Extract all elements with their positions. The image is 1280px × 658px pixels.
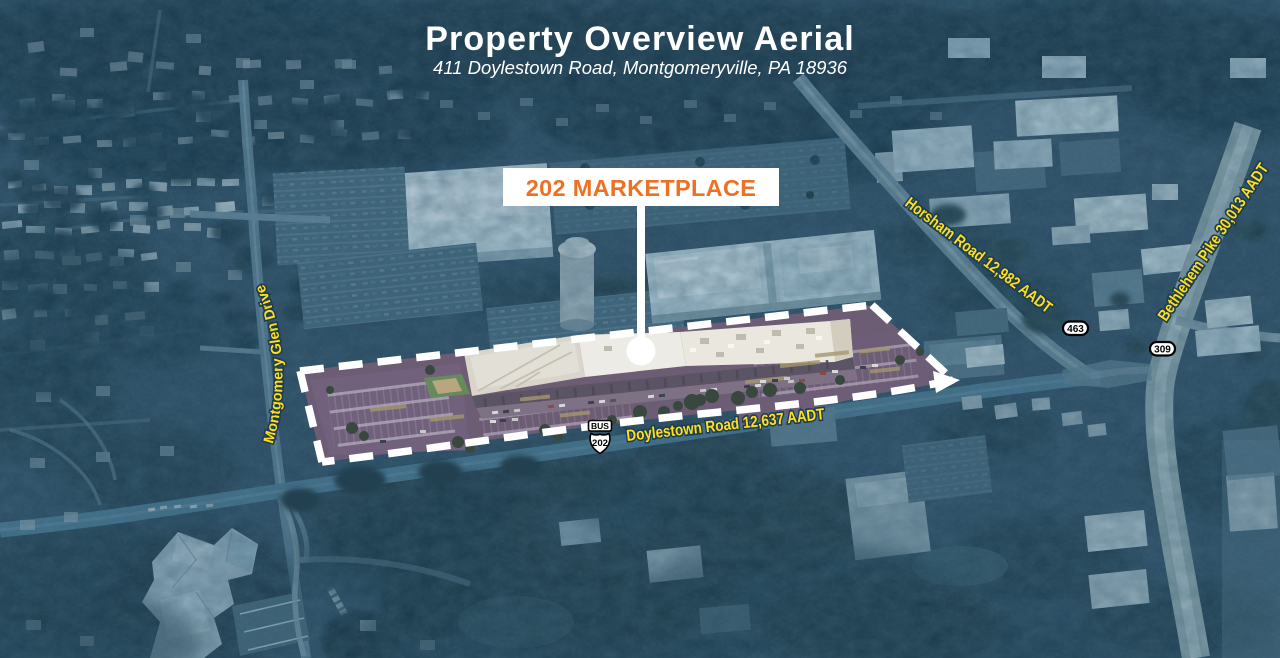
svg-text:309: 309 bbox=[1154, 345, 1171, 356]
svg-text:463: 463 bbox=[1067, 324, 1084, 335]
svg-text:BUS: BUS bbox=[591, 421, 609, 431]
svg-text:202 MARKETPLACE: 202 MARKETPLACE bbox=[526, 175, 756, 201]
svg-text:411 Doylestown Road, Montgomer: 411 Doylestown Road, Montgomeryville, PA… bbox=[433, 57, 848, 78]
svg-text:202: 202 bbox=[592, 438, 608, 449]
svg-text:Property Overview Aerial: Property Overview Aerial bbox=[425, 20, 855, 58]
